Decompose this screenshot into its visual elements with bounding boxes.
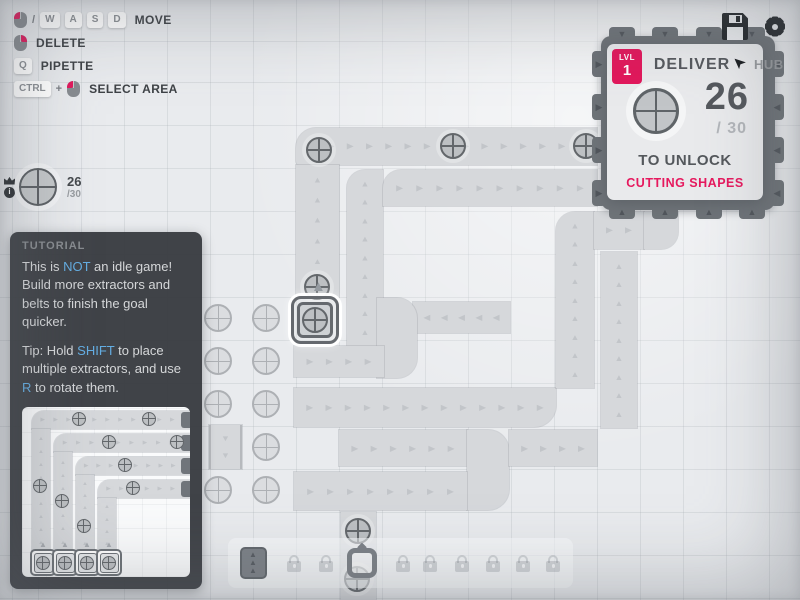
hint-label: DELETE <box>36 36 86 50</box>
pinned-shape-circle <box>19 168 57 206</box>
belt-arrow: ▲ <box>361 180 370 188</box>
shape-circle <box>58 556 72 570</box>
shape-circle <box>306 137 332 163</box>
belt-arrow: ▲ <box>38 462 44 467</box>
belt-segment: ▶▶▶▶ <box>294 346 384 377</box>
belt-arrow: ▶ <box>387 487 394 495</box>
hub-connector <box>181 481 190 497</box>
shape-circle <box>102 556 116 570</box>
belt-arrow: ▲ <box>571 222 580 230</box>
lock-icon <box>287 561 301 572</box>
belt-arrow: ▲ <box>571 277 580 285</box>
extractor-inner <box>297 302 333 338</box>
shape-circle <box>36 556 50 570</box>
belt-segment: ▶▶▶▶ <box>509 430 597 466</box>
extractor-inner <box>78 553 97 573</box>
belt-arrow: ▶ <box>559 444 566 452</box>
belt-arrow: ▲ <box>60 473 66 478</box>
belt-arrow: ▶ <box>347 487 354 495</box>
belt-arrow: ▶ <box>96 463 101 468</box>
belt-arrow: ▲ <box>615 317 624 325</box>
save-icon[interactable] <box>722 13 748 40</box>
level-label: LVL <box>612 53 642 62</box>
belt-arrow: ▶ <box>476 184 483 192</box>
belt-arrow: ▶ <box>129 440 134 445</box>
goal-shape-circle <box>633 88 679 134</box>
toolbar-slot-lock[interactable] <box>508 538 538 588</box>
lock-icon <box>396 561 410 572</box>
extractor-inner <box>100 553 119 573</box>
belt-arrow: ▲ <box>104 505 110 510</box>
pinned-current: 26 <box>67 174 81 189</box>
belt-arrow: ▶ <box>119 486 124 491</box>
belt-arrow: ▶ <box>517 184 524 192</box>
mouse-left-icon <box>14 12 27 28</box>
extractor-inner <box>56 553 75 573</box>
belt-arrow: ▶ <box>606 226 613 234</box>
topbar-icons <box>722 13 788 40</box>
belt-arrow: ▲ <box>361 328 370 336</box>
hub-connector <box>181 458 190 474</box>
belt-arrow: ▶ <box>404 142 411 150</box>
separator: / <box>32 14 35 26</box>
key-s: S <box>87 12 104 28</box>
belt-segment: ▶▶▶▶▶▶▶ <box>98 480 190 498</box>
belt-arrow: ▶ <box>537 184 544 192</box>
belt-arrow: ▶ <box>537 403 544 411</box>
lock-icon <box>455 561 469 572</box>
belt-arrow: ▲ <box>38 501 44 506</box>
hub-connector: ▼ <box>652 27 678 41</box>
belt-arrow: ▶ <box>365 357 372 365</box>
belt-arrow: ▲ <box>615 262 624 270</box>
toolbar-slot-miner[interactable] <box>347 538 377 588</box>
resource-deposit <box>252 347 280 375</box>
belt-arrow: ▶ <box>521 444 528 452</box>
reward-text: CUTTING SHAPES <box>607 176 763 190</box>
belt-arrow: ▲ <box>104 529 110 534</box>
belt-arrow: ▶ <box>66 417 71 422</box>
belt-arrow: ▶ <box>366 142 373 150</box>
belt-arrow: ▲ <box>60 513 66 518</box>
shape-circle <box>302 307 328 333</box>
shape-circle <box>440 133 466 159</box>
belt-segment: ▲▲▲▲▲▲▲▲▲ <box>556 212 594 388</box>
belt-arrow: ▶ <box>106 486 111 491</box>
belt-arrow: ▶ <box>84 463 89 468</box>
lock-icon <box>546 561 560 572</box>
belt-arrow: ▶ <box>326 357 333 365</box>
hint-row: DELETE <box>14 35 178 51</box>
belt-arrow: ▶ <box>402 403 409 411</box>
key-w: W <box>40 12 59 28</box>
belt-segment <box>467 430 509 510</box>
mouse-right-icon <box>14 35 27 51</box>
belt-arrow: ▶ <box>422 403 429 411</box>
belt-arrow: ▶ <box>157 417 162 422</box>
belt-arrow: ▶ <box>143 440 148 445</box>
pinned-total: /30 <box>67 189 81 200</box>
settings-icon[interactable] <box>762 14 788 40</box>
key-d: D <box>108 12 125 28</box>
belt-arrow: ▲ <box>60 527 66 532</box>
key-q: Q <box>14 58 32 74</box>
belt-arrow: ◀ <box>441 313 448 321</box>
lock-icon <box>516 561 530 572</box>
belt-arrow: ▲ <box>361 291 370 299</box>
belt-arrow: ▶ <box>557 184 564 192</box>
belt-arrow: ▲ <box>615 336 624 344</box>
extractor-output-arrow: ▲ <box>83 541 91 549</box>
belt-arrow: ▲ <box>313 197 322 205</box>
belt-segment: ▲▲▲▲▲▲▲▲▲ <box>601 252 637 428</box>
resource-deposit <box>204 347 232 375</box>
belt-arrow: ◀ <box>493 313 500 321</box>
mouse-left-icon <box>67 81 80 97</box>
hint-row: QPIPETTE <box>14 58 178 74</box>
belt-arrow: ▶ <box>89 440 94 445</box>
toolbar-slot-lock[interactable] <box>478 538 508 588</box>
hub-connector: ▲ <box>739 205 765 219</box>
hub-connector: ▶ <box>592 94 606 120</box>
lock-icon <box>423 561 437 572</box>
belt-arrow: ▶ <box>105 417 110 422</box>
belt-arrow: ▶ <box>158 486 163 491</box>
hub-connector: ▶ <box>592 51 606 77</box>
hub-connector: ▼ <box>696 27 722 41</box>
key-a: A <box>65 12 82 28</box>
toolbar-slot-lock[interactable] <box>388 538 418 588</box>
belt-segment: ▶▶▶▶▶▶▶▶▶▶ <box>383 170 597 206</box>
tutorial-text: This is NOT an idle game! Build more ext… <box>22 258 190 397</box>
belt-arrow: ▶ <box>578 444 585 452</box>
belt-arrow: ◀ <box>475 313 482 321</box>
belt-segment: ▶▶▶▶▶▶▶▶▶ <box>76 457 190 475</box>
game-screen: ▶▶▶▶▶▶▶▶▶▶▶▶▶▶▶▲▲▲▲▲▲▲▲▲▲▲▲▲▲▲▶▶▶▶▶▶▶▶▶▶… <box>0 0 800 600</box>
belt-arrow: ▶ <box>497 184 504 192</box>
belt-arrow: ▶ <box>171 463 176 468</box>
belt-arrow: ▶ <box>109 463 114 468</box>
belt-arrow: ▲ <box>82 493 88 498</box>
belt-arrow: ▶ <box>76 440 81 445</box>
belt-arrow: ▶ <box>558 142 565 150</box>
unlock-text: TO UNLOCK <box>607 152 763 169</box>
belt-arrow: ▲ <box>615 280 624 288</box>
belt-arrow: ▲ <box>571 333 580 341</box>
shape-circle <box>80 556 94 570</box>
belt-arrow: ▲ <box>38 449 44 454</box>
belt-arrow: ▲ <box>571 296 580 304</box>
tutorial-panel: TUTORIAL This is NOT an idle game! Build… <box>10 232 202 589</box>
belt-segment: ▶▶▶▶▶▶▶▶ <box>294 472 467 510</box>
belt-arrow: ▼ <box>221 452 230 460</box>
belt-arrow: ▶ <box>540 444 547 452</box>
belt-arrow: ▲ <box>361 235 370 243</box>
belt-arrow: ▶ <box>118 417 123 422</box>
belt-arrow: ▶ <box>131 417 136 422</box>
belt-arrow: ▶ <box>371 444 378 452</box>
resource-deposit <box>252 304 280 332</box>
belt-arrow: ▶ <box>53 417 58 422</box>
extractor-output-arrow: ▲ <box>311 279 326 294</box>
belt-arrow: ▶ <box>448 444 455 452</box>
belt-arrow: ▶ <box>40 417 45 422</box>
tutorial-title: TUTORIAL <box>22 240 190 252</box>
belt-arrow: ▲ <box>615 391 624 399</box>
belt-arrow: ▲ <box>82 505 88 510</box>
belt-arrow: ▲ <box>571 370 580 378</box>
belt-arrow: ▶ <box>345 403 352 411</box>
hub-connector: ▶ <box>592 180 606 206</box>
belt-arrow: ▶ <box>325 403 332 411</box>
belt-arrow: ▶ <box>481 142 488 150</box>
belt-arrow: ▲ <box>60 487 66 492</box>
resource-deposit <box>204 304 232 332</box>
belt-arrow: ▲ <box>38 514 44 519</box>
toolbar-slot-belt[interactable]: ▲▲▲ <box>238 538 268 588</box>
resource-deposit <box>252 433 280 461</box>
lock-icon <box>319 561 333 572</box>
belt-arrow: ▶ <box>146 463 151 468</box>
delivered-amount: 26 <box>705 76 749 119</box>
belt-arrow: ▶ <box>367 487 374 495</box>
extractor-output-arrow: ▲ <box>61 541 69 549</box>
belt-arrow: ▲ <box>82 481 88 486</box>
belt-segment: ◀◀◀◀◀ <box>413 302 510 333</box>
belt-arrow: ▲ <box>361 198 370 206</box>
hub-connector: ◀ <box>770 137 784 163</box>
hub-connector: ◀ <box>770 180 784 206</box>
crown-icon <box>4 177 15 185</box>
belt-arrow: ▶ <box>518 403 525 411</box>
level-number: 1 <box>612 62 642 79</box>
belt-arrow: ▲ <box>361 272 370 280</box>
tutorial-image: ▶▶▶▶▶▶▶▶▶▶▶▶▲▲▲▲▲▲▲▲▲▶▶▶▶▶▶▶▶▶▶▲▲▲▲▲▲▲▶▶… <box>22 407 190 577</box>
pinned-goal: i 26 /30 <box>4 168 81 206</box>
belt-arrow: ▲ <box>615 354 624 362</box>
belt-segment: ▶▶▶▶▶▶▶▶▶▶▶▶▶ <box>294 388 556 427</box>
belt-arrow: ▶ <box>145 486 150 491</box>
key-ctrl: CTRL <box>14 81 51 97</box>
belt-arrow: ▲ <box>60 460 66 465</box>
lock-icon <box>486 561 500 572</box>
belt-arrow: ▶ <box>345 357 352 365</box>
belt-arrow: ▶ <box>383 403 390 411</box>
belt-arrow: ▶ <box>460 403 467 411</box>
belt-arrow: ▲ <box>104 517 110 522</box>
extractor-output-arrow: ▲ <box>39 541 47 549</box>
belt-arrow: ▶ <box>520 142 527 150</box>
toolbar-slot-lock[interactable] <box>279 538 309 588</box>
belt-segment: ▶▶▶▶▶▶▶▶▶▶▶▶ <box>32 411 190 429</box>
belt-arrow: ▲ <box>361 217 370 225</box>
belt-arrow: ▲ <box>38 436 44 441</box>
belt-arrow: ▶ <box>501 142 508 150</box>
hint-row: CTRL+SELECT AREA <box>14 81 178 97</box>
hub-label: HUB <box>754 57 784 72</box>
keybinding-hints: /WASDMOVEDELETEQPIPETTECTRL+SELECT AREA <box>14 12 178 97</box>
belt-arrow: ▶ <box>539 142 546 150</box>
belt-arrow: ▶ <box>170 417 175 422</box>
toolbar-slot-lock[interactable] <box>538 538 568 588</box>
belt-arrow: ▶ <box>156 440 161 445</box>
belt-arrow: ▲ <box>313 237 322 245</box>
belt-arrow: ▲ <box>571 259 580 267</box>
belt-segment: ▶▶▶▶▶▶ <box>339 430 467 466</box>
belt-arrow: ▶ <box>306 403 313 411</box>
belt-arrow: ▲ <box>615 373 624 381</box>
tutorial-paragraph: Tip: Hold SHIFT to place multiple extrac… <box>22 342 190 397</box>
hub-connector: ▲ <box>609 205 635 219</box>
belt-arrow: ▲ <box>571 314 580 322</box>
hint-label: PIPETTE <box>41 59 94 73</box>
belt-arrow: ▶ <box>116 440 121 445</box>
info-icon[interactable]: i <box>4 187 15 198</box>
belt-arrow: ▲ <box>313 217 322 225</box>
belt-arrow: ▲ <box>313 257 322 265</box>
belt-arrow: ▲ <box>571 240 580 248</box>
belt-segment: ▼▼ <box>209 425 242 469</box>
hub-connector: ▲ <box>696 205 722 219</box>
belt-arrow: ▶ <box>409 444 416 452</box>
belt-arrow: ▶ <box>396 184 403 192</box>
separator: + <box>56 83 62 95</box>
hub-connector: ▼ <box>609 27 635 41</box>
hub-goal-panel: LVL 1 DELIVER HUB 26 / 30 TO UNLOCK CUTT… <box>607 44 763 200</box>
hint-label: SELECT AREA <box>89 82 178 96</box>
hub-connector <box>181 412 190 428</box>
deliver-title: DELIVER <box>639 56 745 74</box>
belt-arrow: ▼ <box>221 434 230 442</box>
belt-arrow: ▶ <box>441 403 448 411</box>
level-badge: LVL 1 <box>612 49 642 84</box>
belt-arrow: ▶ <box>159 463 164 468</box>
extractor-building: ▲ <box>96 549 122 576</box>
belt-arrow: ▶ <box>498 403 505 411</box>
extractor-tool-icon <box>347 548 377 578</box>
belt-arrow: ▶ <box>327 487 334 495</box>
belt-arrow: ▶ <box>170 486 175 491</box>
belt-arrow: ▲ <box>361 309 370 317</box>
belt-arrow: ▶ <box>364 403 371 411</box>
hub-connector: ▶ <box>592 137 606 163</box>
belt-arrow: ▶ <box>447 487 454 495</box>
belt-arrow: ▶ <box>307 487 314 495</box>
belt-arrow: ▶ <box>456 184 463 192</box>
resource-deposit <box>252 390 280 418</box>
extractor-output-arrow: ▲ <box>105 541 113 549</box>
belt-arrow: ▶ <box>92 417 97 422</box>
belt-arrow: ▲ <box>615 299 624 307</box>
toolbar-slot-lock[interactable] <box>415 538 445 588</box>
tutorial-paragraph: This is NOT an idle game! Build more ext… <box>22 258 190 332</box>
belt-arrow: ◀ <box>423 313 430 321</box>
extractor-inner <box>34 553 53 573</box>
belt-arrow: ▶ <box>347 142 354 150</box>
belt-arrow: ▶ <box>428 444 435 452</box>
belt-arrow: ▶ <box>390 444 397 452</box>
belt-arrow: ▶ <box>436 184 443 192</box>
belt-tool-icon: ▲▲▲ <box>240 547 267 579</box>
toolbar-slot-lock[interactable] <box>311 538 341 588</box>
belt-arrow: ▶ <box>351 444 358 452</box>
belt-arrow: ▶ <box>134 463 139 468</box>
belt-arrow: ▶ <box>427 487 434 495</box>
extractor-building[interactable] <box>291 296 339 344</box>
belt-arrow: ▶ <box>416 184 423 192</box>
hub-connector: ◀ <box>770 94 784 120</box>
hint-row: /WASDMOVE <box>14 12 178 28</box>
belt-arrow: ▲ <box>571 351 580 359</box>
belt-arrow: ◀ <box>458 313 465 321</box>
belt-arrow: ▶ <box>424 142 431 150</box>
belt-arrow: ▶ <box>385 142 392 150</box>
belt-arrow: ▶ <box>577 184 584 192</box>
belt-arrow: ▶ <box>479 403 486 411</box>
belt-arrow: ▲ <box>38 527 44 532</box>
toolbar-slot-lock[interactable] <box>447 538 477 588</box>
belt-arrow: ▶ <box>625 226 632 234</box>
belt-arrow: ▲ <box>361 254 370 262</box>
belt-arrow: ▶ <box>63 440 68 445</box>
resource-deposit <box>252 476 280 504</box>
belt-arrow: ▲ <box>615 410 624 418</box>
resource-deposit <box>204 476 232 504</box>
belt-arrow: ▲ <box>313 177 322 185</box>
belt-arrow: ▶ <box>407 487 414 495</box>
hint-label: MOVE <box>135 13 172 27</box>
hub-connector: ▲ <box>652 205 678 219</box>
building-toolbar: ▲▲▲ <box>228 538 573 588</box>
belt-arrow: ▶ <box>306 357 313 365</box>
goal-total: / 30 <box>716 120 747 138</box>
resource-deposit <box>204 390 232 418</box>
